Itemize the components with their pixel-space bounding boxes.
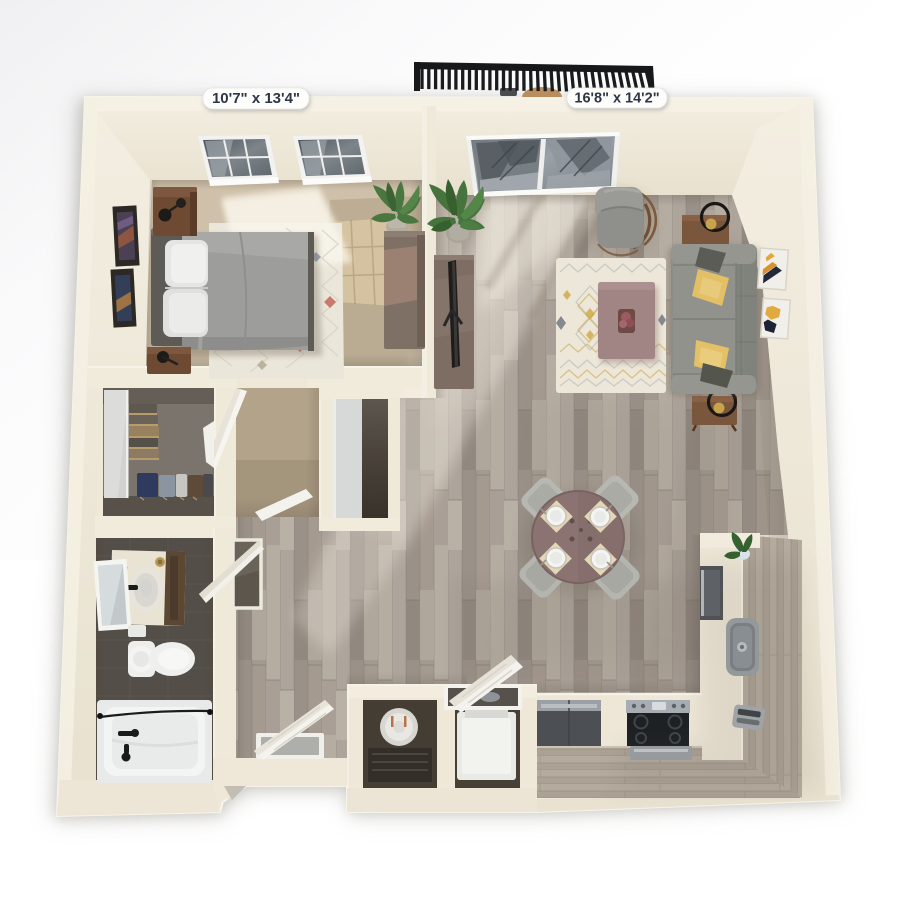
svg-text:10'7" x 13'4": 10'7" x 13'4" [212, 90, 300, 107]
svg-text:16'8" x 14'2": 16'8" x 14'2" [574, 91, 659, 107]
